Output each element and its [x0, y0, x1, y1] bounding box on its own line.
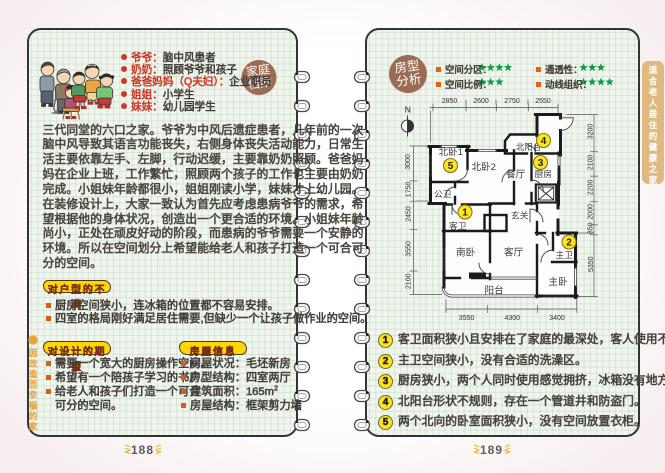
svg-text:人: 人 [649, 98, 658, 108]
svg-text:的: 的 [649, 131, 658, 141]
svg-text:合: 合 [649, 76, 658, 86]
svg-text:居: 居 [649, 109, 658, 119]
svg-text:之: 之 [649, 164, 658, 174]
svg-text:家: 家 [649, 175, 658, 185]
svg-text:适: 适 [649, 65, 658, 75]
svg-text:老: 老 [649, 87, 658, 97]
svg-text:健: 健 [649, 142, 658, 152]
svg-text:住: 住 [649, 120, 658, 130]
svg-text:康: 康 [649, 153, 658, 163]
